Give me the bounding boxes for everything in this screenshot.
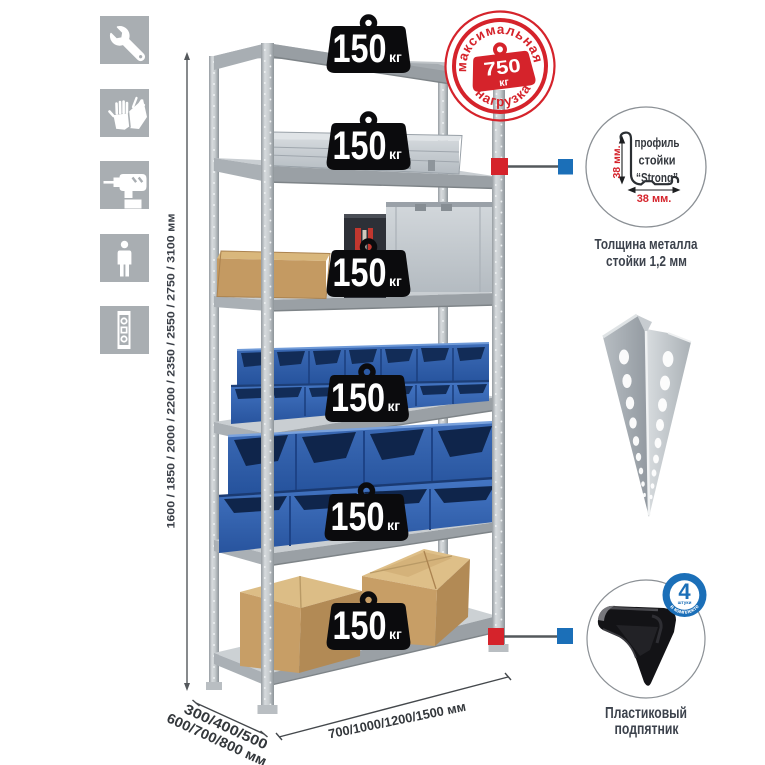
svg-text:стойки: стойки xyxy=(639,154,676,168)
svg-text:подпятник: подпятник xyxy=(615,721,680,738)
svg-text:1600 / 1850 / 2000 / 2200 / 23: 1600 / 1850 / 2000 / 2200 / 2350 / 2550 … xyxy=(166,214,178,529)
svg-text:“Strong”: “Strong” xyxy=(636,171,678,185)
svg-text:стойки 1,2 мм: стойки 1,2 мм xyxy=(606,253,687,270)
svg-text:38 мм.: 38 мм. xyxy=(637,193,672,205)
svg-text:Толщина металла: Толщина металла xyxy=(595,236,699,253)
svg-text:штуки: штуки xyxy=(678,600,692,605)
svg-text:Пластиковый: Пластиковый xyxy=(605,705,687,722)
svg-text:38 мм.: 38 мм. xyxy=(611,145,623,178)
svg-text:профиль: профиль xyxy=(635,136,680,150)
